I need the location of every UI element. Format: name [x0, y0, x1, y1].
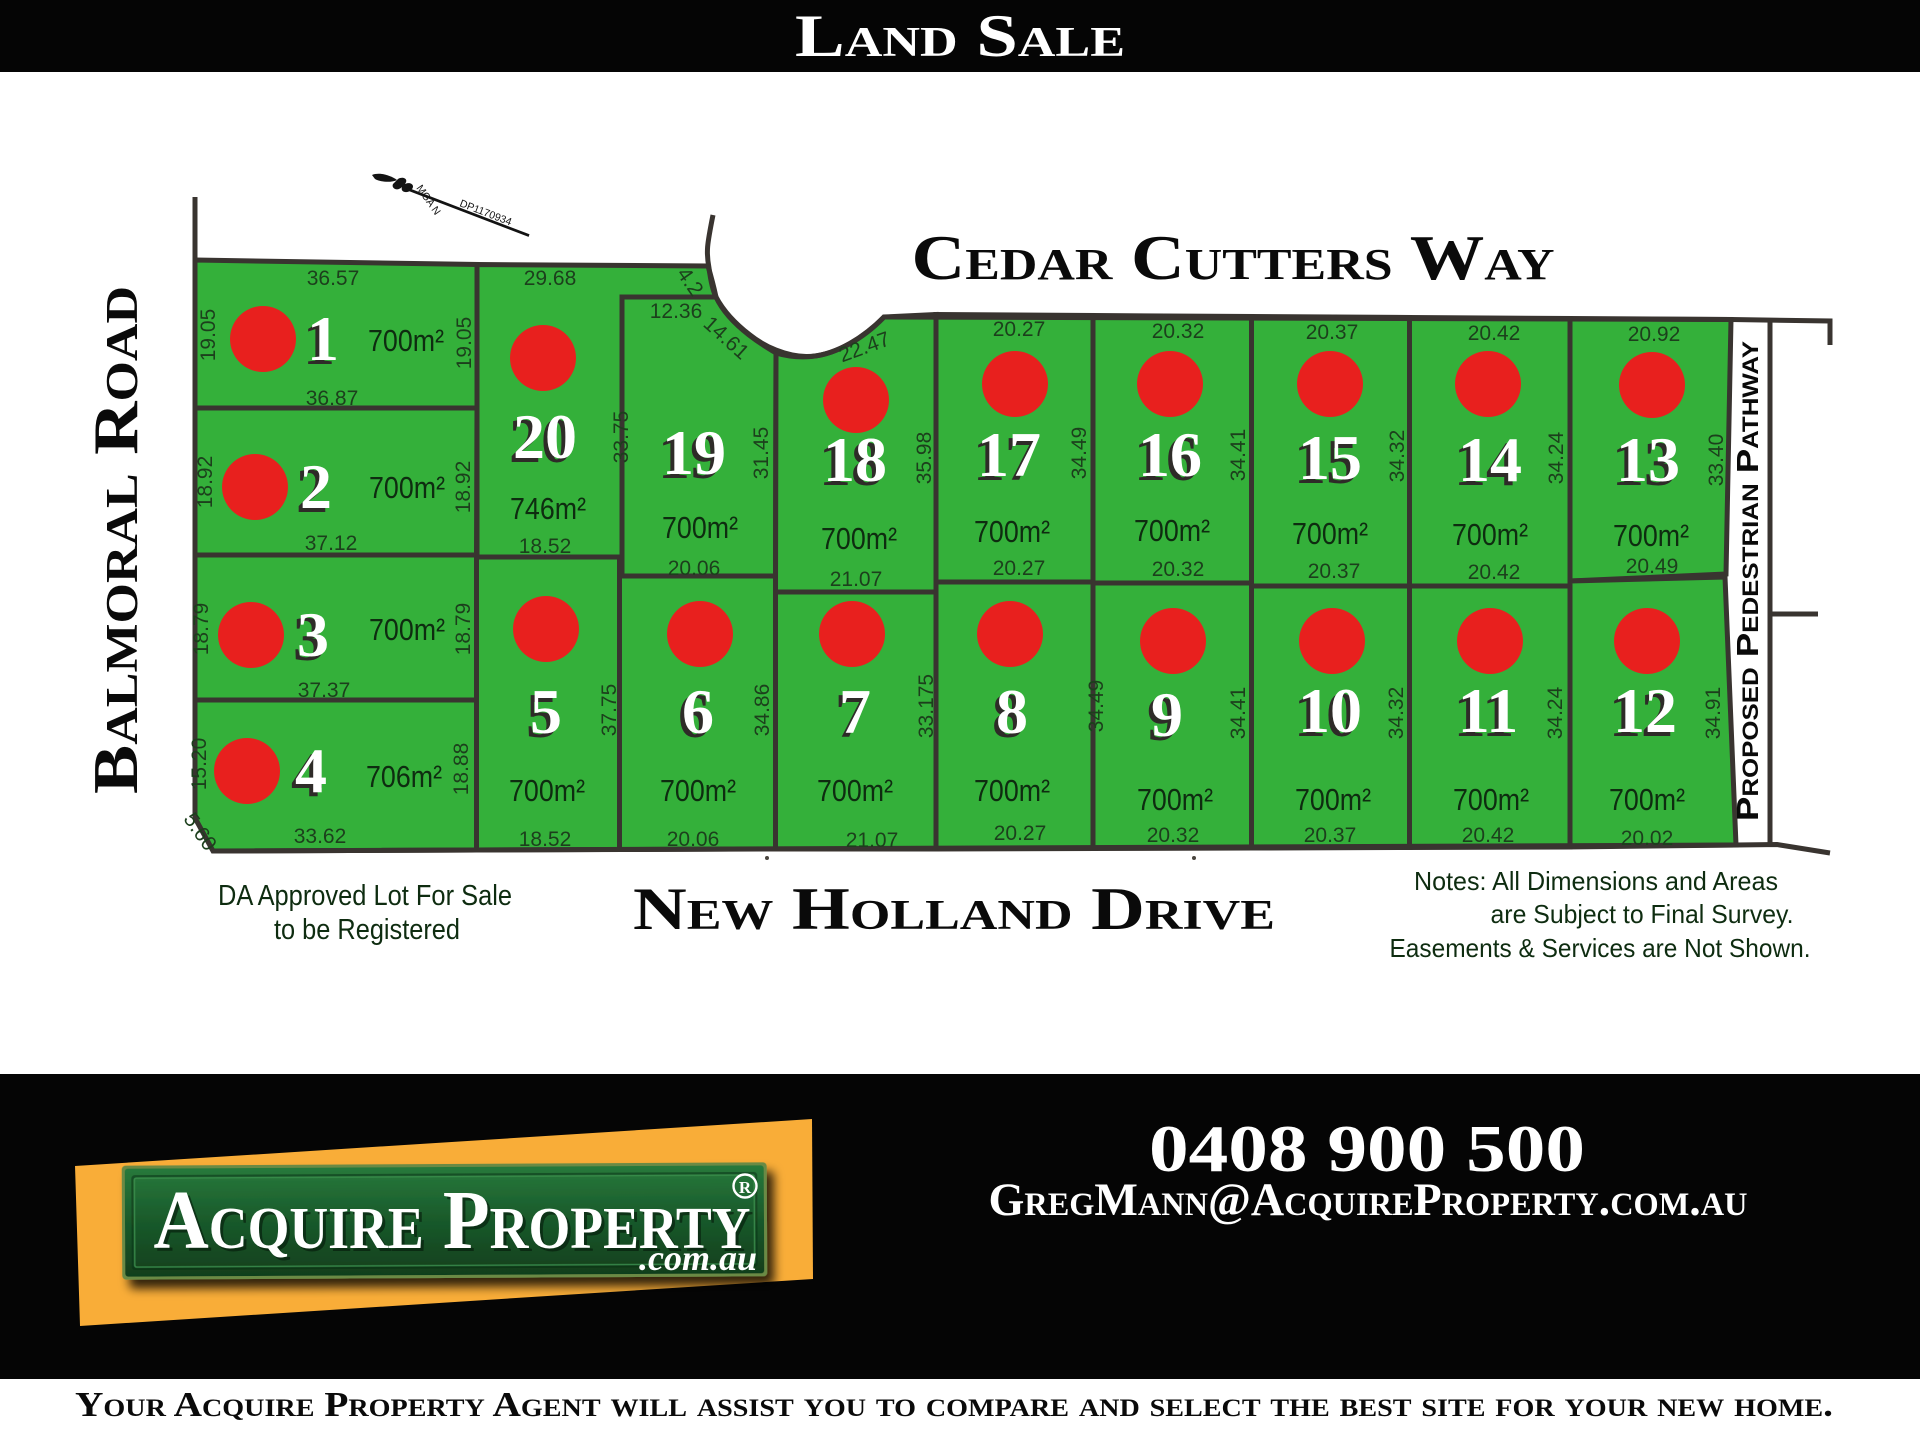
svg-text:700m²: 700m²: [1295, 782, 1371, 817]
svg-text:18.79: 18.79: [452, 603, 475, 656]
svg-text:to be Registered: to be Registered: [274, 914, 460, 946]
svg-text:18.52: 18.52: [519, 535, 572, 558]
svg-text:33.62: 33.62: [294, 825, 347, 848]
svg-text:21.07: 21.07: [846, 829, 899, 852]
svg-text:700m²: 700m²: [817, 773, 893, 808]
svg-text:18.88: 18.88: [450, 743, 473, 796]
svg-text:4: 4: [295, 735, 327, 806]
svg-text:700m²: 700m²: [1134, 513, 1210, 548]
svg-text:19.05: 19.05: [453, 317, 476, 370]
svg-text:20.42: 20.42: [1468, 561, 1521, 584]
svg-text:15.20: 15.20: [188, 738, 211, 791]
svg-text:700m²: 700m²: [1613, 518, 1689, 553]
svg-text:18.92: 18.92: [194, 456, 217, 509]
svg-text:700m²: 700m²: [660, 773, 736, 808]
svg-text:19: 19: [662, 417, 726, 488]
svg-text:36.87: 36.87: [306, 387, 359, 410]
svg-text:12: 12: [1613, 675, 1677, 746]
svg-text:are Subject to Final Survey.: are Subject to Final Survey.: [1491, 899, 1794, 929]
svg-text:20.27: 20.27: [993, 557, 1046, 580]
svg-text:20.32: 20.32: [1152, 320, 1205, 343]
svg-text:29.68: 29.68: [524, 267, 577, 290]
svg-text:Notes: All Dimensions and Area: Notes: All Dimensions and Areas: [1414, 866, 1778, 896]
svg-text:9: 9: [1151, 679, 1183, 750]
svg-text:16: 16: [1138, 419, 1202, 490]
svg-text:18.92: 18.92: [452, 461, 475, 514]
svg-text:35.98: 35.98: [913, 432, 936, 485]
svg-text:700m²: 700m²: [974, 773, 1050, 808]
svg-text:20: 20: [513, 401, 577, 472]
svg-text:6: 6: [682, 676, 714, 747]
svg-text:20.42: 20.42: [1462, 824, 1515, 847]
svg-text:34.91: 34.91: [1702, 687, 1725, 740]
svg-text:20.32: 20.32: [1152, 558, 1205, 581]
svg-text:R: R: [739, 1178, 752, 1197]
svg-text:Proposed Pedestrian Pathway: Proposed Pedestrian Pathway: [1730, 341, 1765, 821]
svg-text:700m²: 700m²: [974, 514, 1050, 549]
svg-text:20.02: 20.02: [1621, 827, 1674, 850]
svg-text:20.32: 20.32: [1147, 824, 1200, 847]
svg-text:36.57: 36.57: [307, 267, 360, 290]
svg-text:GregMann@AcquireProperty.com.a: GregMann@AcquireProperty.com.au: [989, 1174, 1748, 1226]
svg-text:21.07: 21.07: [830, 568, 883, 591]
svg-text:20.37: 20.37: [1306, 321, 1359, 344]
svg-text:34.32: 34.32: [1385, 687, 1408, 740]
svg-text:700m²: 700m²: [1452, 517, 1528, 552]
svg-text:700m²: 700m²: [662, 510, 738, 545]
svg-text:37.75: 37.75: [598, 684, 621, 737]
svg-text:13: 13: [1616, 424, 1680, 495]
svg-text:700m²: 700m²: [509, 773, 585, 808]
svg-text:34.24: 34.24: [1545, 431, 1568, 484]
svg-text:3: 3: [297, 599, 329, 670]
svg-text:20.06: 20.06: [668, 557, 721, 580]
svg-text:2: 2: [300, 451, 332, 522]
svg-text:31.45: 31.45: [750, 427, 773, 480]
svg-text:20.27: 20.27: [993, 318, 1046, 341]
svg-text:33.75: 33.75: [610, 411, 633, 464]
svg-text:20.06: 20.06: [667, 828, 720, 851]
svg-text:18: 18: [823, 424, 887, 495]
svg-text:Easements & Services are Not S: Easements & Services are Not Shown.: [1390, 933, 1811, 963]
svg-text:20.49: 20.49: [1626, 555, 1679, 578]
svg-text:34.41: 34.41: [1227, 687, 1250, 740]
svg-text:34.49: 34.49: [1068, 427, 1091, 480]
svg-text:700m²: 700m²: [368, 323, 444, 358]
svg-text:Cedar Cutters Way: Cedar Cutters Way: [912, 223, 1555, 293]
svg-text:33.175: 33.175: [915, 674, 938, 738]
svg-text:700m²: 700m²: [821, 521, 897, 556]
svg-text:700m²: 700m²: [1137, 782, 1213, 817]
svg-text:1: 1: [307, 303, 339, 374]
svg-text:706m²: 706m²: [366, 759, 442, 794]
svg-text:34.24: 34.24: [1544, 686, 1567, 739]
svg-text:11: 11: [1458, 675, 1518, 746]
svg-text:17: 17: [977, 419, 1041, 490]
svg-text:37.12: 37.12: [305, 532, 358, 555]
svg-text:8: 8: [996, 676, 1028, 747]
svg-text:Land Sale: Land Sale: [795, 3, 1125, 69]
svg-text:33.40: 33.40: [1705, 434, 1728, 487]
svg-text:34.32: 34.32: [1386, 430, 1409, 483]
svg-text:12.36: 12.36: [650, 300, 703, 323]
svg-text:34.41: 34.41: [1227, 429, 1250, 482]
svg-text:700m²: 700m²: [1292, 516, 1368, 551]
svg-text:700m²: 700m²: [369, 612, 445, 647]
svg-text:DA Approved Lot For Sale: DA Approved Lot For Sale: [218, 880, 512, 912]
svg-text:20.37: 20.37: [1308, 560, 1361, 583]
svg-text:700m²: 700m²: [369, 470, 445, 505]
svg-text:.com.au: .com.au: [639, 1238, 757, 1278]
svg-text:19.05: 19.05: [197, 309, 220, 362]
svg-text:Your Acquire Property Agent wi: Your Acquire Property Agent will assist …: [75, 1385, 1833, 1424]
svg-text:New Holland Drive: New Holland Drive: [633, 876, 1275, 942]
svg-text:20.27: 20.27: [994, 822, 1047, 845]
svg-text:700m²: 700m²: [1453, 782, 1529, 817]
svg-text:37.37: 37.37: [298, 679, 351, 702]
svg-text:20.92: 20.92: [1628, 323, 1681, 346]
svg-text:700m²: 700m²: [1609, 782, 1685, 817]
svg-text:15: 15: [1298, 422, 1362, 493]
svg-text:7: 7: [839, 676, 871, 747]
svg-text:20.37: 20.37: [1304, 824, 1357, 847]
svg-text:34.86: 34.86: [751, 684, 774, 737]
svg-text:18.79: 18.79: [190, 603, 213, 656]
svg-text:5: 5: [530, 676, 562, 747]
svg-text:20.42: 20.42: [1468, 322, 1521, 345]
svg-text:34.49: 34.49: [1085, 680, 1108, 733]
svg-text:10: 10: [1298, 675, 1362, 746]
svg-text:14: 14: [1458, 424, 1522, 495]
svg-text:18.52: 18.52: [519, 828, 572, 851]
svg-text:Balmoral Road: Balmoral Road: [80, 286, 152, 794]
svg-text:746m²: 746m²: [510, 491, 586, 526]
